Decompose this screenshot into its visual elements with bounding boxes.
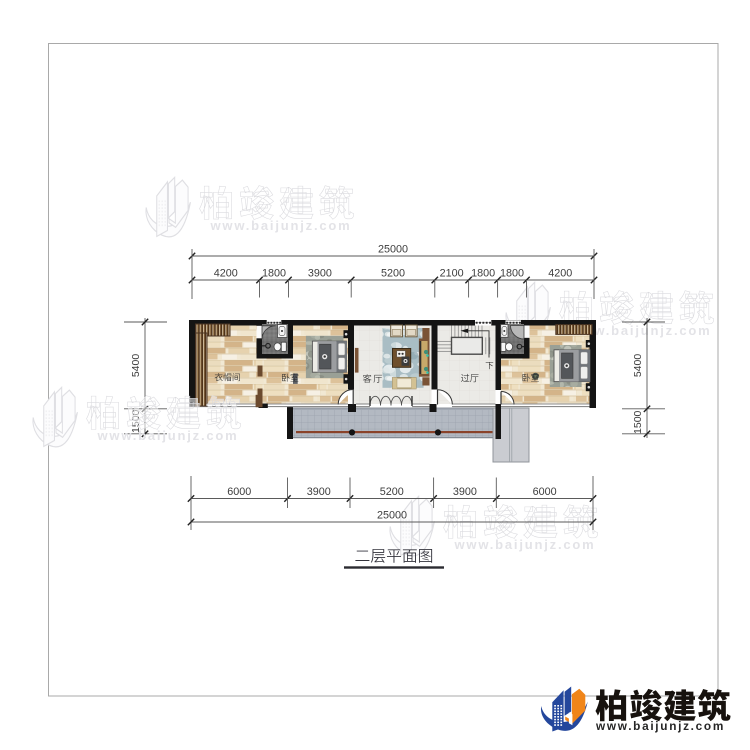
svg-text:3900: 3900: [307, 486, 331, 498]
svg-text:6000: 6000: [533, 486, 557, 498]
svg-text:1800: 1800: [471, 268, 495, 280]
svg-text:2100: 2100: [440, 268, 464, 280]
svg-text:25000: 25000: [377, 510, 407, 522]
svg-text:6000: 6000: [227, 486, 251, 498]
svg-text:5400: 5400: [130, 354, 142, 378]
svg-text:3900: 3900: [453, 486, 477, 498]
svg-text:5200: 5200: [381, 268, 405, 280]
svg-text:www.baijunjz.com: www.baijunjz.com: [595, 719, 725, 733]
svg-text:4200: 4200: [548, 268, 572, 280]
svg-text:1800: 1800: [500, 268, 524, 280]
svg-text:www.baijunjz.com: www.baijunjz.com: [97, 428, 239, 443]
svg-text:www.baijunjz.com: www.baijunjz.com: [454, 537, 596, 552]
svg-text:1500: 1500: [632, 410, 644, 434]
svg-text:5400: 5400: [632, 354, 644, 378]
svg-text:25000: 25000: [378, 244, 408, 256]
svg-text:5200: 5200: [380, 486, 404, 498]
svg-text:3900: 3900: [308, 268, 332, 280]
svg-text:www.baijunjz.com: www.baijunjz.com: [210, 218, 352, 233]
svg-text:4200: 4200: [214, 268, 238, 280]
svg-text:1800: 1800: [262, 268, 286, 280]
